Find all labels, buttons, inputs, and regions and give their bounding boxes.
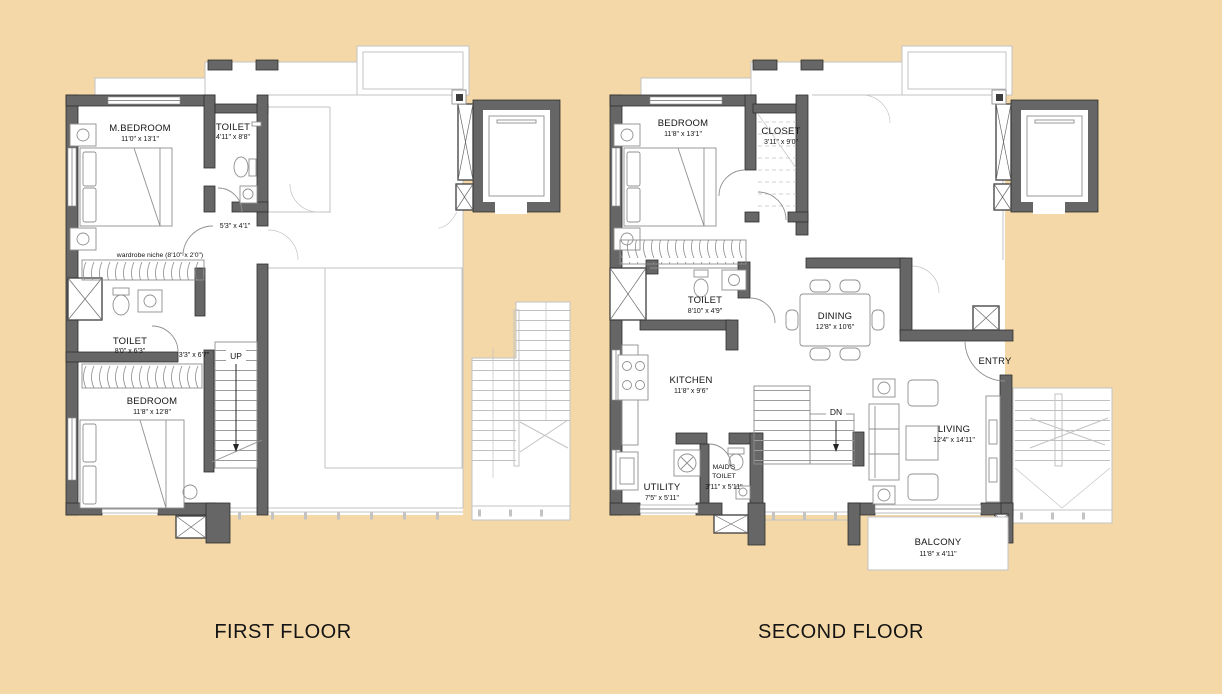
sf-closet-dims: 3'11" x 9'0" — [764, 139, 798, 146]
sf-bedroom-dims: 11'8" x 13'1" — [664, 131, 702, 138]
ff-toilet-b-wc — [113, 295, 129, 315]
sf-maids-label2: TOILET — [712, 473, 736, 480]
ff-toilet-b-label: TOILET — [113, 336, 147, 347]
sf-entry-label: ENTRY — [978, 356, 1011, 367]
ff-toilet-a-label: TOILET — [216, 122, 250, 133]
ff-passage-dims: 3'3" x 6'7" — [179, 352, 210, 359]
ff-bedroom-label: BEDROOM — [127, 396, 178, 407]
sf-living-label: LIVING — [938, 424, 970, 435]
sf-elevator — [992, 90, 1098, 214]
sf-toilet-dims: 8'10" x 4'9" — [688, 308, 723, 315]
ff-wardrobe-niche — [82, 260, 204, 280]
sf-ghost-balcony-topright — [902, 46, 1012, 95]
sf-external-staircase — [1013, 388, 1112, 523]
floor-plan-sheet: M.BEDROOM 11'0" x 13'1" TOILET 4'11" x 8… — [0, 0, 1222, 694]
sf-dn-label: DN — [830, 407, 842, 417]
second-floor-title: SECOND FLOOR — [758, 621, 924, 643]
ff-wardrobe-niche-label: wardrobe niche (8'10" x 2'0") — [116, 252, 203, 259]
sf-balcony-dims: 11'8" x 4'11" — [919, 551, 957, 558]
ff-external-staircase — [472, 302, 570, 520]
first-floor-title: FIRST FLOOR — [214, 621, 351, 643]
ff-toilet-b-dims: 8'0" x 6'3" — [115, 348, 146, 355]
sf-maids-dims: 3'11" x 5'11" — [705, 484, 743, 491]
floor-plans-canvas: M.BEDROOM 11'0" x 13'1" TOILET 4'11" x 8… — [0, 0, 1222, 694]
sf-utility-dims: 7'5" x 5'11" — [645, 495, 679, 502]
second-floor-plan: BEDROOM 11'8" x 13'1" CLOSET 3'11" x 9'0… — [610, 46, 1112, 570]
first-floor-plan: M.BEDROOM 11'0" x 13'1" TOILET 4'11" x 8… — [66, 46, 570, 543]
ff-lobby-dims: 5'3" x 4'1" — [220, 223, 251, 230]
sf-balcony-label: BALCONY — [915, 537, 962, 548]
ff-toilet-a-dims: 4'11" x 8'8" — [216, 134, 250, 141]
sf-dining-dims: 12'8" x 10'6" — [816, 324, 855, 331]
ff-up-label: UP — [230, 351, 242, 361]
sf-sofa — [869, 404, 899, 480]
sf-kitchen-label: KITCHEN — [669, 375, 712, 386]
sf-maids-label1: MAID'S — [713, 464, 736, 471]
sf-closet-label: CLOSET — [761, 126, 800, 137]
sf-bedroom-label: BEDROOM — [658, 118, 709, 129]
sf-armchair-top — [908, 380, 938, 406]
sf-stove — [618, 355, 648, 400]
sf-living-dims: 12'4" x 14'11" — [933, 437, 975, 444]
ff-toilet-a-wc — [234, 157, 248, 177]
sf-toilet-label: TOILET — [688, 295, 722, 306]
ff-bedroom — [80, 364, 202, 508]
sf-utility-label: UTILITY — [644, 482, 681, 493]
ff-ghost-balcony-topright — [357, 46, 469, 95]
sf-kitchen-dims: 11'8" x 9'6" — [674, 388, 708, 395]
ff-m-bedroom-dims: 11'0" x 13'1" — [121, 136, 159, 143]
ff-m-bedroom-label: M.BEDROOM — [109, 123, 170, 134]
sf-armchair-bottom — [908, 474, 938, 500]
sf-dining-label: DINING — [818, 311, 852, 322]
ff-bedroom-dims: 11'8" x 12'8" — [133, 409, 171, 416]
sf-tv-unit — [986, 396, 1000, 502]
